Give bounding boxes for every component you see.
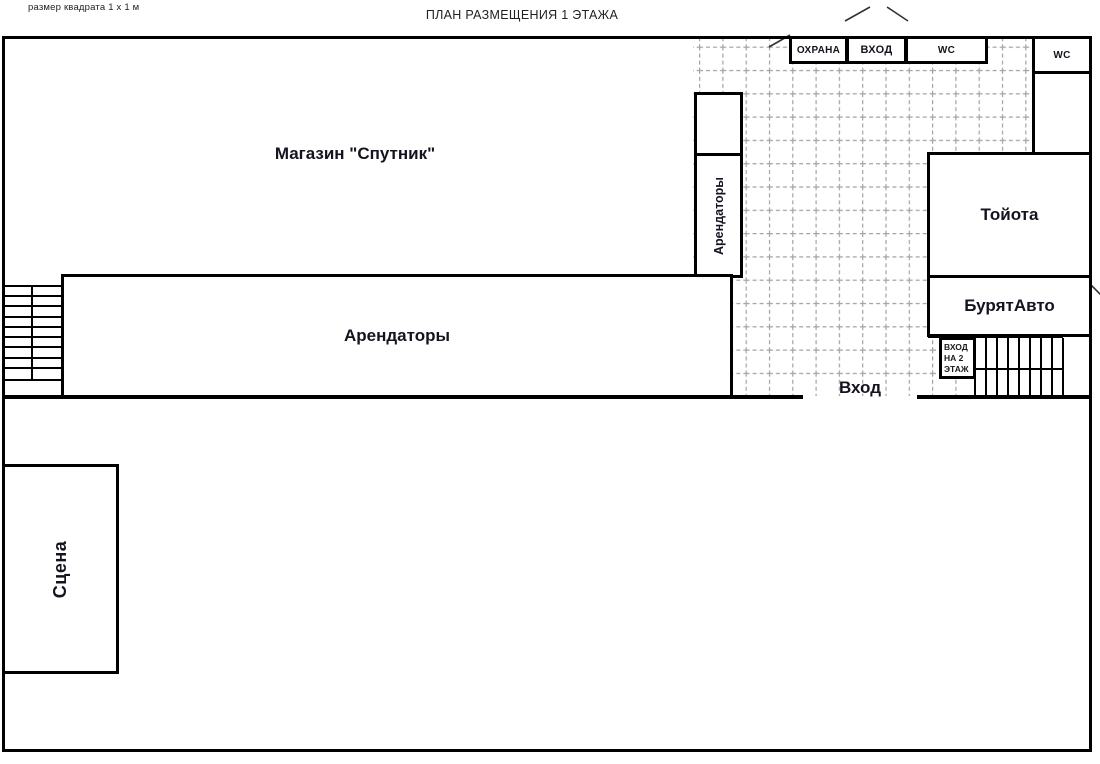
room-toyota-label: Тойота [981,205,1039,225]
middle-wall-right-segment [917,395,1092,399]
room-security: ОХРАНА [789,36,848,64]
room-wc-top: WC [905,36,988,64]
room-tenants-big-label: Арендаторы [344,326,450,346]
room-buryatavto: БурятАвто [927,275,1092,337]
room-shop-label: Магазин "Спутник" [180,144,530,164]
room-stage: Сцена [2,464,119,674]
room-entrance-floor2: ВХОД НА 2 ЭТАЖ [939,337,976,379]
room-stage-label: Сцена [50,540,71,597]
main-entry-mark-right [887,7,908,21]
room-entrance-top: ВХОД [846,36,907,64]
room-toyota: Тойота [927,152,1092,278]
room-empty-right-column [1032,71,1092,155]
entrance-floor2-line3: ЭТАЖ [944,364,969,375]
entrance-floor2-line1: ВХОД [944,342,968,353]
room-empty-column [694,92,743,156]
middle-wall-left-segment [2,395,803,399]
room-wc-top-label: WC [938,45,955,56]
room-buryatavto-label: БурятАвто [964,296,1055,316]
entrance-gap-label: Вход [810,378,910,398]
main-entry-mark-left [845,7,870,21]
room-entrance-top-label: ВХОД [860,44,892,56]
room-tenants-big: Арендаторы [61,274,733,398]
room-tenants-vertical-label: Арендаторы [712,177,726,255]
room-wc-right-label: WC [1053,50,1070,61]
room-wc-right: WC [1032,36,1092,74]
entrance-floor2-line2: НА 2 [944,353,963,364]
scale-note: размер квадрата 1 х 1 м [28,2,139,13]
floor-plan-canvas: размер квадрата 1 х 1 м ПЛАН РАЗМЕЩЕНИЯ … [0,0,1100,764]
room-tenants-vertical: Арендаторы [694,153,743,278]
plan-title: ПЛАН РАЗМЕЩЕНИЯ 1 ЭТАЖА [372,8,672,22]
room-security-label: ОХРАНА [797,45,840,56]
